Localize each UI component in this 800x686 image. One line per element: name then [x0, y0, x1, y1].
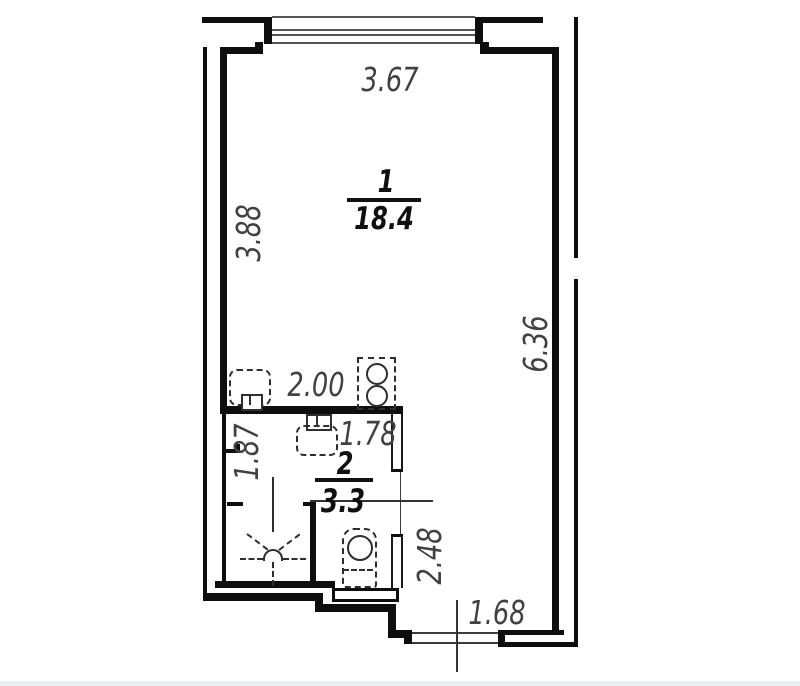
wall-bottom-a: [203, 593, 322, 601]
room-1-number: 1: [347, 163, 425, 201]
room-1-area: 18.4: [345, 201, 423, 237]
room-2-area: 3.3: [304, 483, 382, 519]
entry-door-jamb: [404, 630, 412, 644]
wall-top-left: [202, 17, 271, 23]
wall-notch-left: [255, 42, 263, 54]
bath-door-opening-line: [400, 472, 401, 534]
dim-bath-outer-width: 2.00: [269, 363, 363, 405]
dim-bath-left-height: 1.87: [226, 413, 266, 491]
window-jamb-right: [475, 17, 483, 44]
wall-right-outer-lower: [574, 279, 578, 647]
page-edge-strip: [0, 681, 800, 686]
wall-top-right: [475, 17, 543, 23]
wall-duct-box: [332, 588, 399, 602]
wall-bath-bottom: [215, 581, 335, 588]
entry-opening-line-bottom: [412, 642, 498, 644]
dim-hall-height: 2.48: [409, 517, 449, 595]
dim-right-height: 6.36: [515, 305, 555, 383]
wall-left-inner: [220, 47, 227, 408]
floor-plan-canvas: 3.67 3.88 6.36 1 18.4 2.00 1.78 1.87 2 3…: [0, 0, 800, 686]
wall-notch-right: [480, 42, 489, 54]
wall-top-inner-right: [486, 47, 559, 54]
dim-left-height: 3.88: [228, 194, 268, 272]
wall-bottom-b: [315, 604, 396, 612]
wall-right-outer-upper: [574, 17, 578, 258]
dim-top-width: 3.67: [343, 58, 437, 100]
wall-left-outer: [203, 47, 207, 601]
window-jamb-left: [264, 17, 272, 44]
wall-tick-lower: [227, 502, 243, 506]
dim-entry-width: 1.68: [450, 591, 544, 633]
